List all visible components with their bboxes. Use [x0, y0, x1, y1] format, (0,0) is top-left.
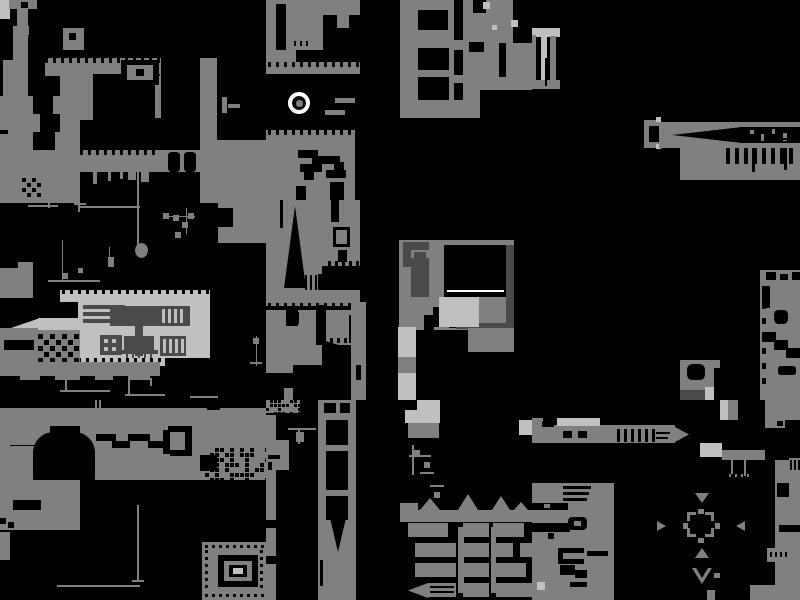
map-viewport — [0, 0, 800, 600]
world-map-canvas[interactable] — [0, 0, 800, 600]
